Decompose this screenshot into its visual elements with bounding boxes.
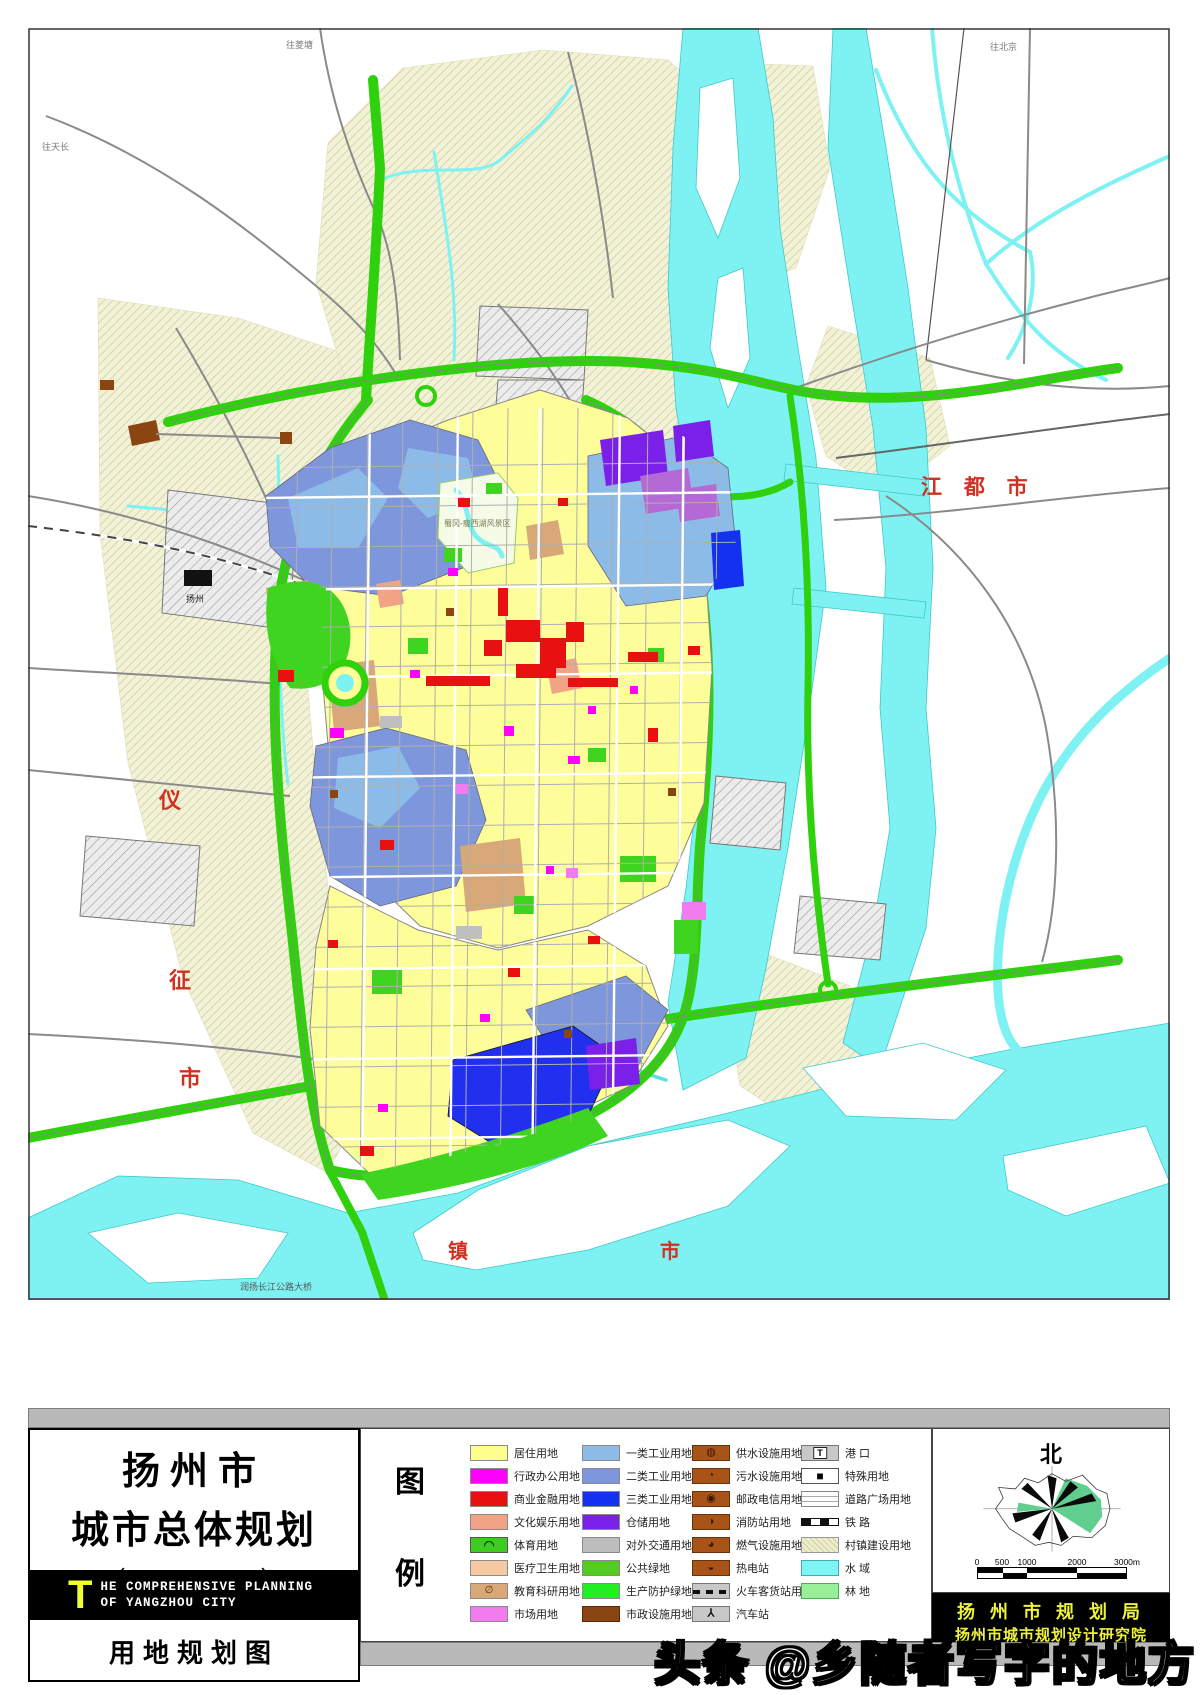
legend-label: 特殊用地 bbox=[845, 1468, 889, 1484]
legend-item: 三类工业用地 bbox=[582, 1491, 692, 1507]
legend-item: 市场用地 bbox=[470, 1606, 580, 1622]
legend-swatch bbox=[582, 1606, 620, 1622]
scale-bar: 0 500 1000 2000 3000m bbox=[977, 1557, 1127, 1579]
label-station: 扬州 bbox=[186, 593, 204, 604]
legend-swatch bbox=[470, 1514, 508, 1530]
legend-col3: ◍供水设施用地 ◔污水设施用地 ◉邮政电信用地 ◑消防站用地 ◕燃气设施用地 ◒… bbox=[692, 1445, 813, 1622]
legend-swatch: ∅ bbox=[470, 1583, 508, 1599]
legend-item: 火车客货站用地 bbox=[692, 1583, 813, 1599]
legend-label: 污水设施用地 bbox=[736, 1468, 802, 1484]
legend-swatch bbox=[692, 1583, 730, 1599]
legend-item: 居住用地 bbox=[470, 1445, 580, 1461]
attribution-line1: 扬 州 市 规 划 局 bbox=[933, 1598, 1169, 1624]
legend-swatch: ■ bbox=[801, 1468, 839, 1484]
legend-swatch-icon: ◔ bbox=[708, 1471, 715, 1482]
legend-item: 林 地 bbox=[801, 1583, 911, 1599]
legend-swatch bbox=[470, 1445, 508, 1461]
legend-item: T港 口 bbox=[801, 1445, 911, 1461]
legend-label: 公共绿地 bbox=[626, 1560, 670, 1576]
legend-label: 港 口 bbox=[845, 1445, 870, 1461]
legend-col2: 一类工业用地 二类工业用地 三类工业用地 仓储用地 对外交通用地 公共绿地 生产… bbox=[582, 1445, 692, 1622]
legend-col4: T港 口 ■特殊用地 道路广场用地 铁 路 村镇建设用地 水 域 林 地 bbox=[801, 1445, 911, 1599]
watermark-text: 头条 @乡随者写字的地方 bbox=[654, 1628, 1196, 1694]
legend-item: 仓储用地 bbox=[582, 1514, 692, 1530]
legend-label: 对外交通用地 bbox=[626, 1537, 692, 1553]
legend-label: 村镇建设用地 bbox=[845, 1537, 911, 1553]
legend-item: 对外交通用地 bbox=[582, 1537, 692, 1553]
divider-band-top bbox=[28, 1408, 1170, 1428]
legend-swatch bbox=[801, 1518, 839, 1526]
scale-tick: 2000 bbox=[1068, 1557, 1087, 1567]
legend-item: ⅄汽车站 bbox=[692, 1606, 813, 1622]
legend-swatch-icon: ■ bbox=[816, 1470, 823, 1482]
legend-item: 铁 路 bbox=[801, 1514, 911, 1530]
english-title-line2: OF YANGZHOU CITY bbox=[100, 1595, 313, 1611]
legend-swatch bbox=[801, 1491, 839, 1507]
legend-label: 仓储用地 bbox=[626, 1514, 670, 1530]
legend-label: 铁 路 bbox=[845, 1514, 870, 1530]
legend-label: 三类工业用地 bbox=[626, 1491, 692, 1507]
legend-label: 市场用地 bbox=[514, 1606, 558, 1622]
legend-glyph-bottom: 例 bbox=[395, 1549, 425, 1593]
legend-label: 市政设施用地 bbox=[626, 1606, 692, 1622]
legend-swatch bbox=[582, 1468, 620, 1484]
legend-item: ◉邮政电信用地 bbox=[692, 1491, 813, 1507]
legend-label: 水 域 bbox=[845, 1560, 870, 1576]
scale-tick: 0 bbox=[975, 1557, 980, 1567]
legend-item: 商业金融用地 bbox=[470, 1491, 580, 1507]
wind-rose bbox=[947, 1463, 1157, 1553]
legend-swatch: ◕ bbox=[692, 1537, 730, 1553]
legend-label: 商业金融用地 bbox=[514, 1491, 580, 1507]
legend-item: 村镇建设用地 bbox=[801, 1537, 911, 1553]
legend-swatch: ◠ bbox=[470, 1537, 508, 1553]
legend-label: 居住用地 bbox=[514, 1445, 558, 1461]
legend-label: 行政办公用地 bbox=[514, 1468, 580, 1484]
legend-item: 文化娱乐用地 bbox=[470, 1514, 580, 1530]
legend-swatch: ◍ bbox=[692, 1445, 730, 1461]
legend-item: 生产防护绿地 bbox=[582, 1583, 692, 1599]
legend-label: 一类工业用地 bbox=[626, 1445, 692, 1461]
legend-item: ∅教育科研用地 bbox=[470, 1583, 580, 1599]
legend-swatch bbox=[801, 1537, 839, 1553]
legend-swatch-icon: ◑ bbox=[708, 1517, 715, 1528]
legend-item: 行政办公用地 bbox=[470, 1468, 580, 1484]
legend-swatch bbox=[801, 1583, 839, 1599]
label-zheng: 征 bbox=[169, 968, 191, 993]
legend-swatch-icon: ◍ bbox=[706, 1448, 716, 1459]
label-bridge: 润扬长江公路大桥 bbox=[240, 1281, 312, 1292]
legend-label: 医疗卫生用地 bbox=[514, 1560, 580, 1576]
label-shi-west: 市 bbox=[179, 1066, 201, 1091]
legend-swatch-icon: ⅄ bbox=[708, 1609, 715, 1620]
legend-item: 道路广场用地 bbox=[801, 1491, 911, 1507]
legend-swatch: ⅄ bbox=[692, 1606, 730, 1622]
legend-label: 汽车站 bbox=[736, 1606, 769, 1622]
english-title-line1: HE COMPREHENSIVE PLANNING bbox=[100, 1579, 313, 1595]
legend-item: ■特殊用地 bbox=[801, 1468, 911, 1484]
legend-label: 道路广场用地 bbox=[845, 1491, 911, 1507]
legend-label: 体育用地 bbox=[514, 1537, 558, 1553]
legend-swatch-icon: ◠ bbox=[483, 1539, 494, 1552]
legend-label: 邮政电信用地 bbox=[736, 1491, 802, 1507]
legend-label: 生产防护绿地 bbox=[626, 1583, 692, 1599]
label-jiangdu: 江 都 市 bbox=[921, 475, 1036, 499]
legend-swatch: ◒ bbox=[692, 1560, 730, 1576]
english-title-strip: T HE COMPREHENSIVE PLANNING OF YANGZHOU … bbox=[30, 1570, 358, 1620]
legend-swatch bbox=[582, 1445, 620, 1461]
legend-label: 燃气设施用地 bbox=[736, 1537, 802, 1553]
legend-label: 供水设施用地 bbox=[736, 1445, 802, 1461]
legend-label: 热电站 bbox=[736, 1560, 769, 1576]
legend-item: 医疗卫生用地 bbox=[470, 1560, 580, 1576]
legend-swatch bbox=[470, 1560, 508, 1576]
legend-item: 公共绿地 bbox=[582, 1560, 692, 1576]
legend-swatch: ◉ bbox=[692, 1491, 730, 1507]
legend-swatch: ◔ bbox=[692, 1468, 730, 1484]
legend-swatch bbox=[582, 1560, 620, 1576]
legend-swatch bbox=[582, 1514, 620, 1530]
label-shi-south: 市 bbox=[660, 1239, 680, 1263]
legend-item: ◠体育用地 bbox=[470, 1537, 580, 1553]
sheet-subtitle: 用地规划图 bbox=[30, 1633, 358, 1670]
map-title-line2: 城市总体规划 bbox=[30, 1499, 358, 1554]
legend-swatch-icon: ◒ bbox=[708, 1563, 715, 1574]
legend-swatch bbox=[582, 1583, 620, 1599]
legend-label: 林 地 bbox=[845, 1583, 870, 1599]
scale-tick: 1000 bbox=[1018, 1557, 1037, 1567]
label-yi: 仪 bbox=[158, 788, 182, 813]
legend-label: 消防站用地 bbox=[736, 1514, 791, 1530]
map-title-line1: 扬州市 bbox=[30, 1440, 358, 1495]
legend-swatch-icon: ◉ bbox=[706, 1494, 716, 1505]
legend-swatch-icon: ◕ bbox=[708, 1540, 715, 1551]
english-title-initial: T bbox=[68, 1572, 92, 1618]
legend-item: ◔污水设施用地 bbox=[692, 1468, 813, 1484]
legend-swatch-icon: T bbox=[813, 1447, 827, 1459]
legend-panel: 图 例 居住用地 行政办公用地 商业金融用地 文化娱乐用地 ◠体育用地 医疗卫生… bbox=[360, 1428, 932, 1642]
label-to-lingtang: 往菱塘 bbox=[286, 39, 313, 50]
label-zhen: 镇 bbox=[448, 1239, 468, 1263]
legend-item: ◒热电站 bbox=[692, 1560, 813, 1576]
legend-swatch bbox=[470, 1491, 508, 1507]
legend-swatch: ◑ bbox=[692, 1514, 730, 1530]
legend-item: 一类工业用地 bbox=[582, 1445, 692, 1461]
legend-swatch bbox=[470, 1606, 508, 1622]
label-to-beijing: 往北京 bbox=[990, 41, 1017, 52]
legend-item: 水 域 bbox=[801, 1560, 911, 1576]
map-canvas: 江 都 市 仪 征 市 镇 市 润扬长江公路大桥 往菱塘 往北京 往天长 扬州 … bbox=[28, 28, 1170, 1300]
legend-label: 文化娱乐用地 bbox=[514, 1514, 580, 1530]
title-block: 扬州市 城市总体规划 （2002-2020） T HE COMPREHENSIV… bbox=[28, 1428, 360, 1682]
legend-item: 市政设施用地 bbox=[582, 1606, 692, 1622]
legend-swatch: T bbox=[801, 1445, 839, 1461]
legend-swatch bbox=[801, 1560, 839, 1576]
legend-col1: 居住用地 行政办公用地 商业金融用地 文化娱乐用地 ◠体育用地 医疗卫生用地 ∅… bbox=[470, 1445, 580, 1622]
legend-swatch bbox=[470, 1468, 508, 1484]
legend-item: ◍供水设施用地 bbox=[692, 1445, 813, 1461]
scale-tick: 500 bbox=[995, 1557, 1009, 1567]
legend-glyph-top: 图 bbox=[395, 1457, 425, 1501]
legend-swatch bbox=[582, 1537, 620, 1553]
legend-item: ◕燃气设施用地 bbox=[692, 1537, 813, 1553]
scale-tick: 3000m bbox=[1114, 1557, 1140, 1567]
legend-label: 教育科研用地 bbox=[514, 1583, 580, 1599]
legend-swatch bbox=[582, 1491, 620, 1507]
label-scenic: 蜀冈-瘦西湖风景区 bbox=[444, 518, 511, 528]
legend-item: ◑消防站用地 bbox=[692, 1514, 813, 1530]
legend-item: 二类工业用地 bbox=[582, 1468, 692, 1484]
planning-map-page: 江 都 市 仪 征 市 镇 市 润扬长江公路大桥 往菱塘 往北京 往天长 扬州 … bbox=[0, 0, 1200, 1695]
legend-label: 二类工业用地 bbox=[626, 1468, 692, 1484]
legend-swatch-icon: ∅ bbox=[485, 1586, 494, 1596]
compass-panel: 北 0 500 1000 2000 3000m bbox=[932, 1428, 1170, 1593]
label-to-tianchang: 往天长 bbox=[42, 141, 69, 152]
